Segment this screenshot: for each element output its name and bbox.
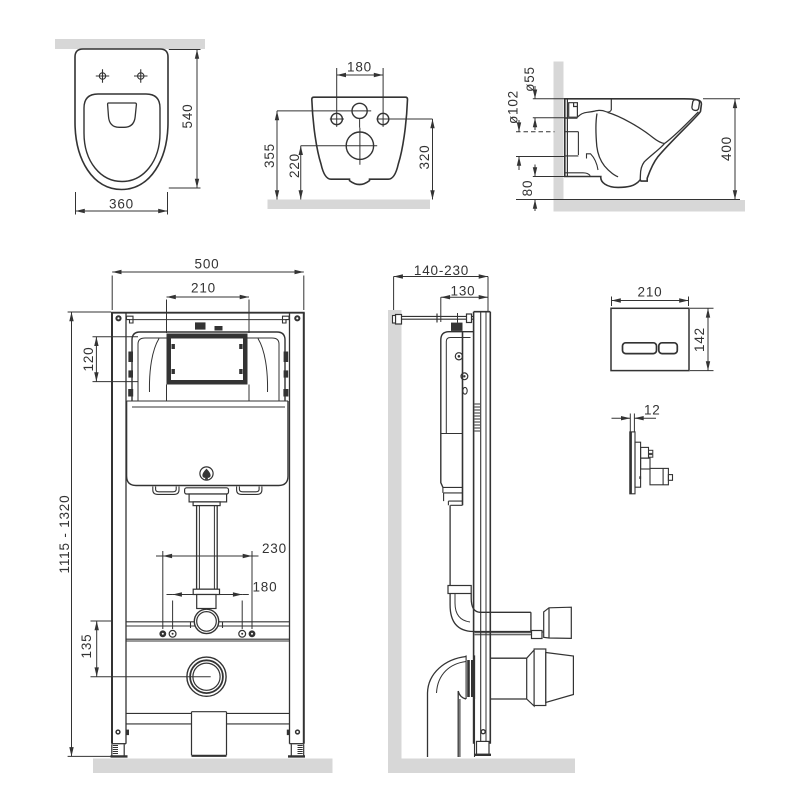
svg-text:355: 355 xyxy=(262,143,277,168)
svg-text:180: 180 xyxy=(347,60,372,75)
svg-text:180: 180 xyxy=(253,580,278,595)
svg-text:400: 400 xyxy=(719,136,734,161)
svg-text:210: 210 xyxy=(191,281,216,296)
svg-text:ø102: ø102 xyxy=(506,90,521,124)
svg-text:12: 12 xyxy=(644,403,661,418)
svg-text:220: 220 xyxy=(287,153,302,178)
svg-text:360: 360 xyxy=(109,197,134,212)
svg-text:80: 80 xyxy=(520,180,535,197)
svg-text:140-230: 140-230 xyxy=(414,263,469,278)
svg-text:ø55: ø55 xyxy=(522,66,537,92)
svg-text:500: 500 xyxy=(195,256,220,271)
svg-text:142: 142 xyxy=(692,327,707,352)
svg-text:320: 320 xyxy=(417,145,432,170)
svg-text:230: 230 xyxy=(262,541,287,556)
svg-text:1115 - 1320: 1115 - 1320 xyxy=(57,495,72,574)
svg-text:210: 210 xyxy=(638,285,663,300)
svg-text:540: 540 xyxy=(180,104,195,129)
svg-text:130: 130 xyxy=(451,283,476,298)
svg-text:135: 135 xyxy=(79,634,94,659)
svg-text:120: 120 xyxy=(81,347,96,372)
